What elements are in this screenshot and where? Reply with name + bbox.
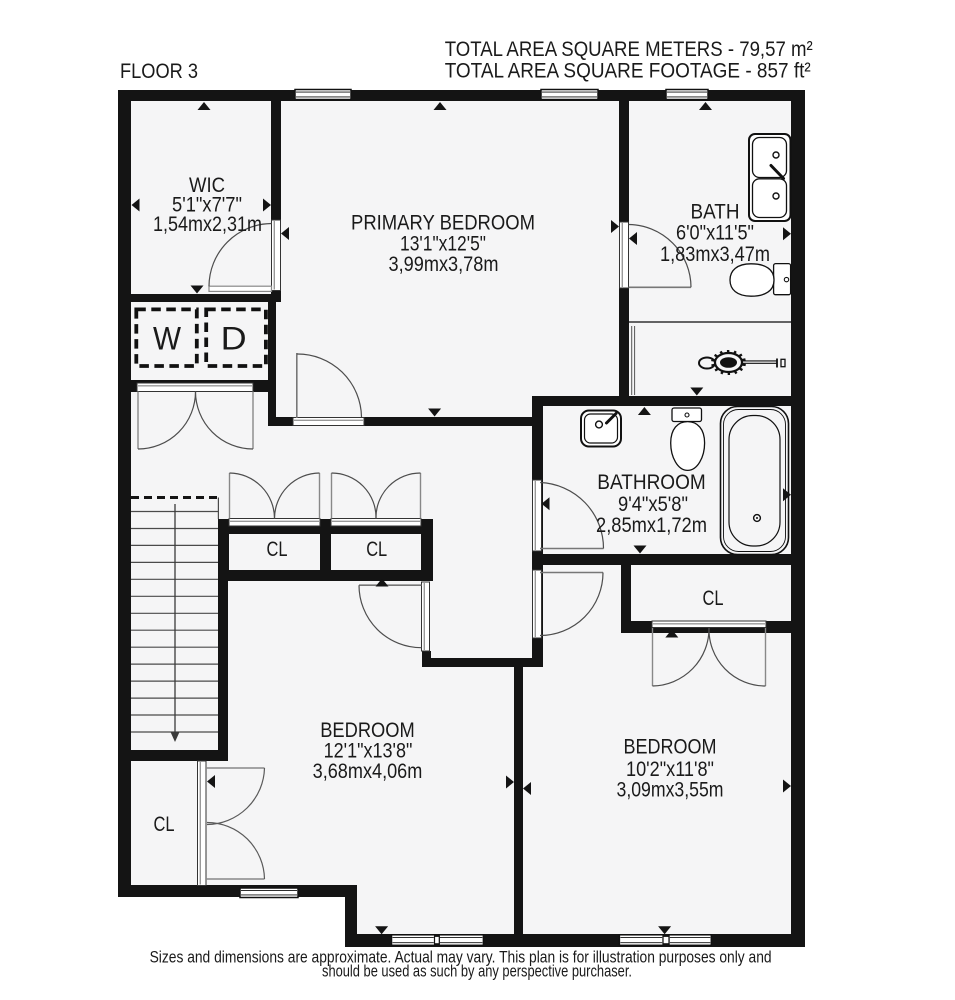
svg-text:W: W — [153, 321, 182, 357]
svg-text:D: D — [221, 321, 247, 357]
svg-text:CL: CL — [154, 813, 175, 836]
svg-text:3,09mx3,55m: 3,09mx3,55m — [617, 779, 724, 802]
svg-text:CL: CL — [366, 538, 387, 561]
svg-text:TOTAL AREA SQUARE METERS - 79,: TOTAL AREA SQUARE METERS - 79,57 m² — [445, 38, 813, 61]
svg-text:CL: CL — [703, 587, 724, 610]
svg-text:1,83mx3,47m: 1,83mx3,47m — [660, 243, 770, 266]
svg-text:TOTAL AREA SQUARE FOOTAGE - 8: TOTAL AREA SQUARE FOOTAGE - 857 ft² — [445, 60, 811, 83]
svg-text:9'4"x5'8": 9'4"x5'8" — [618, 493, 688, 516]
svg-text:1,54mx2,31m: 1,54mx2,31m — [153, 213, 262, 236]
svg-text:BATH: BATH — [691, 201, 740, 224]
svg-text:BATHROOM: BATHROOM — [597, 471, 706, 494]
svg-text:BEDROOM: BEDROOM — [320, 719, 415, 742]
svg-text:3,99mx3,78m: 3,99mx3,78m — [389, 253, 499, 276]
svg-text:3,68mx4,06m: 3,68mx4,06m — [313, 760, 423, 783]
svg-text:should be used as such by any: should be used as such by any perspectiv… — [322, 962, 632, 981]
svg-text:CL: CL — [267, 538, 288, 561]
svg-text:FLOOR 3: FLOOR 3 — [120, 60, 198, 83]
svg-text:BEDROOM: BEDROOM — [624, 736, 717, 759]
svg-text:2,85mx1,72m: 2,85mx1,72m — [596, 514, 707, 537]
svg-text:6'0"x11'5": 6'0"x11'5" — [676, 222, 754, 245]
svg-text:PRIMARY BEDROOM: PRIMARY BEDROOM — [351, 212, 535, 235]
